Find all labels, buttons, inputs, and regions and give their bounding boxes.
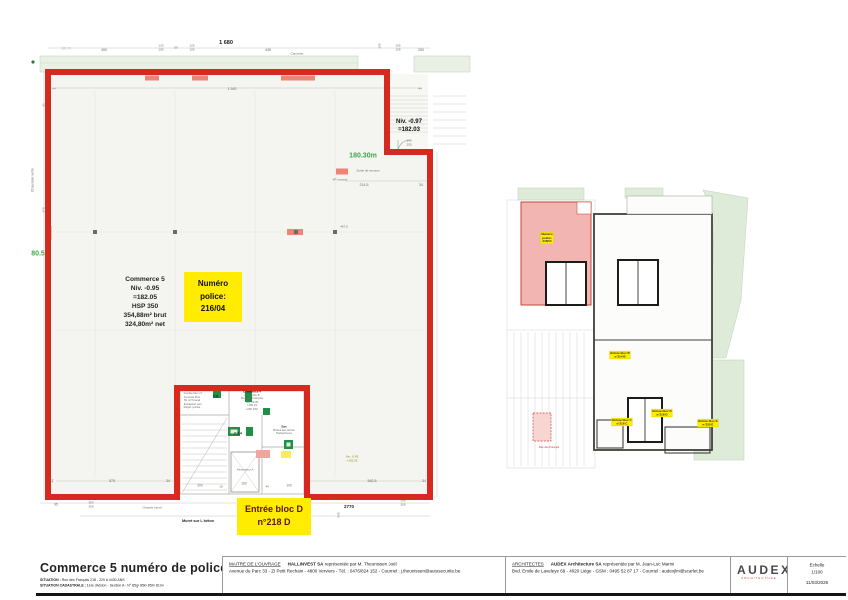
architectes-cell: ARCHITECTESAUDEX Architecture SA représe… [505,556,730,593]
maitre-label: MAITRE DE L'OUVRAGE [229,562,281,567]
plan-sheet: 1 68040012510550125105445Caniveau2051051… [0,0,848,600]
maitre-address: Avenue du Parc 33 - ZI Petit Rechain - 4… [229,568,499,575]
architectes-line1: ARCHITECTESAUDEX Architecture SA représe… [512,561,724,568]
architectes-address: Bvd. Emile de Laveleye 69 - 4020 Liège -… [512,568,724,575]
drawing-date: 11/03/2026 [794,580,840,587]
maitre-line1: MAITRE DE L'OUVRAGEHALLINVEST SA représe… [229,561,499,568]
maitre-rep: représentée par M. Theunissen Joël [323,562,396,567]
situation-label: SITUATION : [40,579,61,583]
scale-label: Echelle [794,562,840,569]
police-number-box: Numéro police: 216/04 [184,272,242,322]
drawing-title: Commerce 5 numéro de police 216/04 [40,561,216,575]
architectes-label: ARCHITECTES [512,562,544,567]
commerce-info-label: Commerce 5 Niv. -0.95 =182.05 HSP 350 35… [105,276,185,329]
audex-logo-subtext: ARCHITECTURE [737,577,781,580]
titleblock-title-cell: Commerce 5 numéro de police 216/04 SITUA… [36,556,222,593]
cadastrale-value: 1ère division - Section A - N° 85g² 85k²… [87,584,164,588]
scale-value: 1/100 [794,569,840,576]
architectes-name: AUDEX Architecture SA [551,562,602,567]
titleblock: Commerce 5 numéro de police 216/04 SITUA… [36,556,846,593]
entrance-bloc-d-box: Entrée bloc D n°218 D [237,498,311,535]
maitre-ouvrage-cell: MAITRE DE L'OUVRAGEHALLINVEST SA représe… [222,556,505,593]
situation-value: Rue des Français 218 - 220 à 4430 ANS [62,579,125,583]
maitre-name: HALLINVEST SA [288,562,324,567]
architectes-rep: représentée par M. Jean-Luc Marini [602,562,675,567]
audex-logo-text: AUDEX [737,563,781,577]
cadastrale-line: SITUATION CADASTRALE : 1ère division - S… [40,583,216,588]
page-bottom-rule [36,593,846,596]
audex-logo: AUDEX ARCHITECTURE [730,556,787,593]
scale-date-cell: Echelle 1/100 11/03/2026 [787,556,846,593]
level-label-top-right: Niv. -0.97 =182.03 [386,118,432,134]
cadastrale-label: SITUATION CADASTRALE : [40,584,86,588]
minimap [507,188,748,468]
